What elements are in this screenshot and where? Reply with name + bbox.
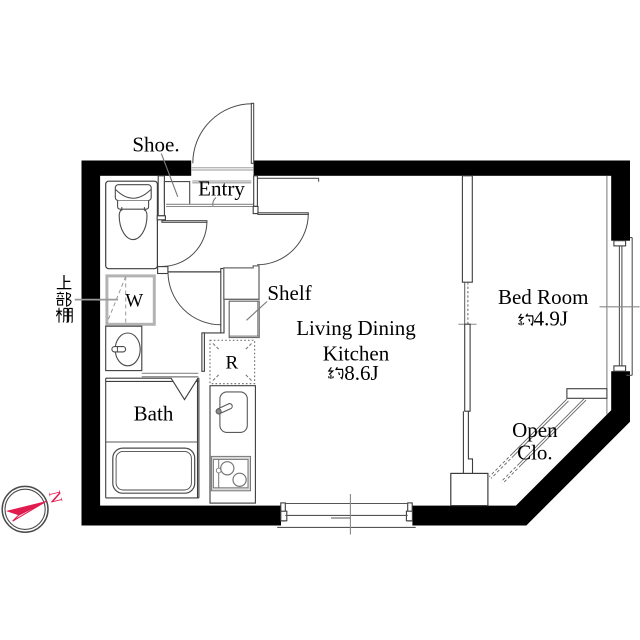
svg-text:Shelf: Shelf [267,281,311,305]
svg-text:R: R [225,352,238,373]
svg-text:Entry: Entry [198,176,245,200]
svg-text:Clo.: Clo. [517,441,553,465]
svg-text:Shoe.: Shoe. [132,133,179,157]
svg-text:4.9J: 4.9J [534,306,568,330]
svg-text:8.6J: 8.6J [344,361,378,385]
svg-text:Living Dining: Living Dining [296,316,416,340]
svg-text:Bath: Bath [134,401,174,425]
svg-text:Open: Open [512,418,558,442]
svg-text:W: W [125,290,143,311]
